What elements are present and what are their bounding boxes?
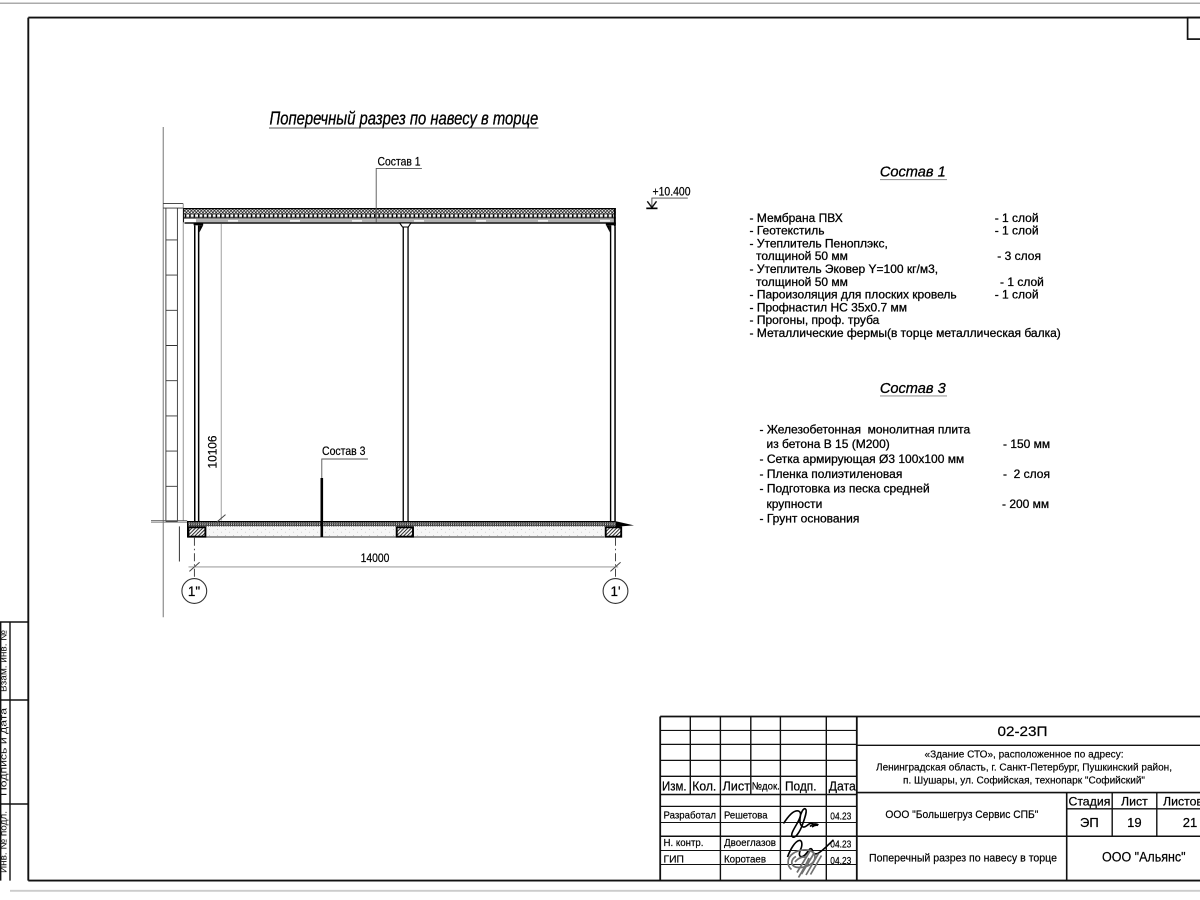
svg-text:Ленинградская область, г. Санк: Ленинградская область, г. Санкт-Петербур…: [876, 762, 1172, 774]
svg-text:10106: 10106: [208, 436, 220, 469]
svg-text:- 2 слоя: - 2 слоя: [1003, 467, 1050, 481]
svg-text:Состав 1: Состав 1: [880, 165, 946, 181]
svg-text:Лист: Лист: [723, 778, 751, 793]
svg-text:из бетона В 15 (М200): из бетона В 15 (М200): [767, 437, 890, 451]
svg-text:1': 1': [610, 584, 620, 599]
svg-text:- 1 слой: - 1 слой: [995, 224, 1039, 238]
svg-text:Взам. инв. №: Взам. инв. №: [0, 630, 10, 692]
svg-text:- 150 мм: - 150 мм: [1003, 437, 1050, 451]
svg-text:- 1 слой: - 1 слой: [995, 288, 1039, 302]
svg-text:19: 19: [1127, 815, 1141, 830]
svg-text:14000: 14000: [361, 553, 390, 565]
svg-text:Стадия: Стадия: [1068, 794, 1110, 808]
svg-text:«Здание СТО», расположенное по: «Здание СТО», расположенное по адресу:: [925, 749, 1124, 760]
svg-text:Листов: Листов: [1163, 794, 1200, 808]
svg-text:04.23: 04.23: [830, 856, 851, 867]
svg-text:Изм.: Изм.: [662, 778, 687, 793]
svg-text:- Грунт основания: - Грунт основания: [760, 512, 860, 526]
svg-text:ГИП: ГИП: [664, 854, 684, 865]
svg-text:04.23: 04.23: [830, 840, 851, 851]
svg-text:Подпись и дата: Подпись и дата: [0, 707, 10, 796]
svg-text:ООО "Большегруз Сервис СПБ": ООО "Большегруз Сервис СПБ": [885, 809, 1038, 821]
svg-text:1": 1": [188, 584, 201, 599]
svg-text:- Сетка армирующая Ø3 100х100: - Сетка армирующая Ø3 100х100 мм: [760, 452, 965, 466]
svg-text:- Железобетонная монолитная п: - Железобетонная монолитная плита: [760, 423, 971, 437]
svg-text:Разработал: Разработал: [664, 809, 717, 821]
svg-text:крупности: крупности: [767, 497, 823, 511]
svg-text:21: 21: [1183, 815, 1197, 830]
svg-text:Кол.: Кол.: [692, 778, 716, 793]
svg-text:- Пленка полиэтиленовая: - Пленка полиэтиленовая: [760, 467, 903, 481]
svg-text:Поперечный разрез по навесу в: Поперечный разрез по навесу в торце: [869, 853, 1057, 865]
svg-text:Состав 3: Состав 3: [880, 381, 946, 397]
svg-text:+10.400: +10.400: [653, 185, 691, 199]
svg-text:Н. контр.: Н. контр.: [664, 838, 704, 849]
svg-text:- 3 слоя: - 3 слоя: [997, 249, 1041, 263]
svg-text:- 200 мм: - 200 мм: [1002, 497, 1049, 511]
svg-text:Лист: Лист: [1121, 794, 1148, 808]
svg-text:Подп.: Подп.: [785, 778, 817, 793]
svg-text:ООО "Альянс": ООО "Альянс": [1102, 850, 1186, 865]
svg-text:- Металлические фермы(в торце: - Металлические фермы(в торце металличес…: [750, 326, 1061, 340]
svg-text:Решетова: Решетова: [724, 810, 768, 821]
svg-text:Поперечный разрез по навесу в: Поперечный разрез по навесу в торце: [270, 108, 539, 129]
svg-text:Инв. № подл.: Инв. № подл.: [0, 811, 10, 873]
svg-text:п. Шушары, ул. Софийская, техн: п. Шушары, ул. Софийская, технопарк "Соф…: [903, 775, 1145, 787]
svg-text:Коротаев: Коротаев: [724, 854, 766, 865]
svg-text:Дата: Дата: [829, 778, 857, 793]
svg-text:- Подготовка из песка средней: - Подготовка из песка средней: [760, 482, 930, 496]
svg-text:Состав 1: Состав 1: [378, 155, 421, 169]
svg-text:ЭП: ЭП: [1080, 815, 1099, 830]
svg-text:04.23: 04.23: [830, 812, 851, 823]
svg-text:Состав 3: Состав 3: [322, 444, 366, 458]
svg-text:Двоеглазов: Двоеглазов: [724, 838, 777, 849]
svg-text:№док.: №док.: [752, 782, 780, 793]
svg-text:02-23П: 02-23П: [998, 723, 1048, 739]
